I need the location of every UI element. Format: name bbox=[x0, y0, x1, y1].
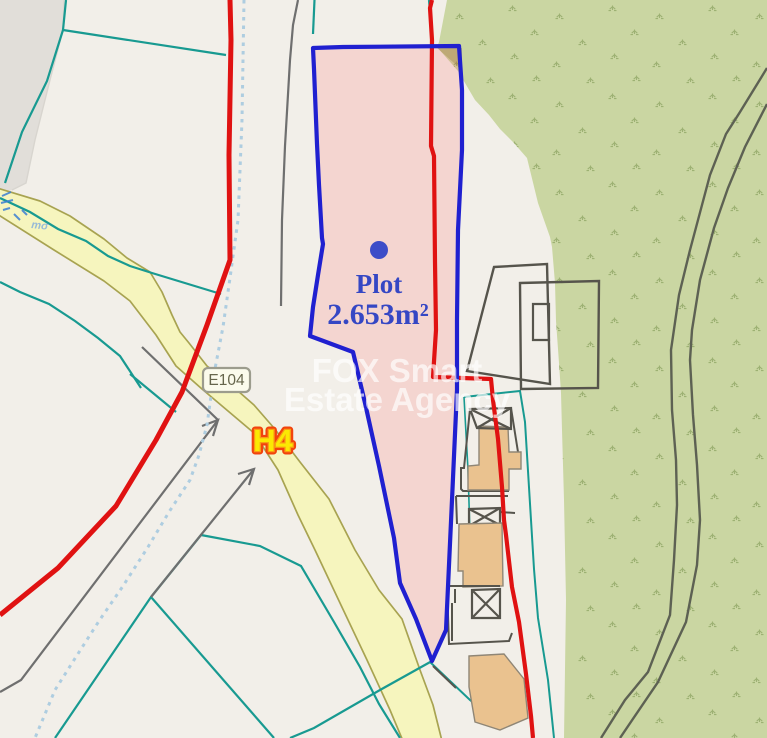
svg-text:mσ: mσ bbox=[31, 219, 50, 233]
svg-text:E104: E104 bbox=[208, 372, 245, 389]
svg-text:2.653m²: 2.653m² bbox=[327, 298, 428, 331]
svg-text:Estate Agency: Estate Agency bbox=[284, 381, 511, 418]
svg-text:H4: H4 bbox=[253, 423, 293, 458]
svg-text:Plot: Plot bbox=[356, 269, 403, 299]
